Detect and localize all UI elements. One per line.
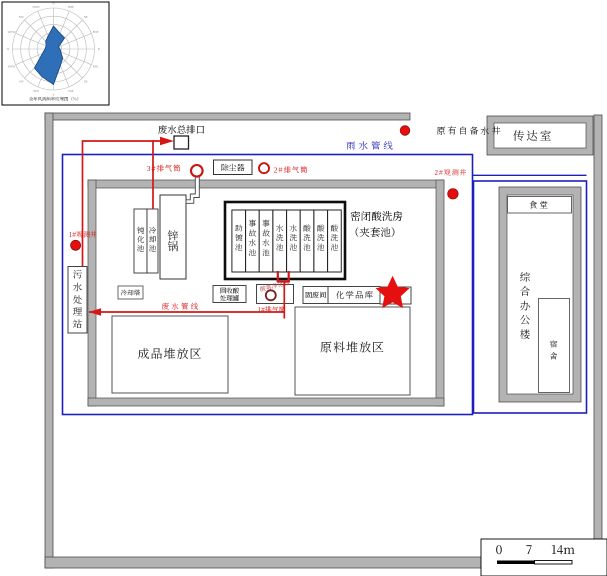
svg-text:WNW: WNW (8, 30, 16, 34)
svg-text:冷却塔: 冷却塔 (121, 288, 141, 297)
svg-text:3#排气筒: 3#排气筒 (147, 163, 182, 174)
svg-text:固废间: 固废间 (305, 291, 326, 301)
svg-text:酸洗池: 酸洗池 (317, 223, 325, 253)
svg-text:酸洗池: 酸洗池 (303, 223, 311, 253)
svg-text:0: 0 (496, 541, 503, 558)
svg-text:原料堆放区: 原料堆放区 (320, 339, 385, 356)
svg-text:SE: SE (84, 79, 88, 83)
svg-text:酸洗池: 酸洗池 (331, 223, 339, 253)
svg-text:雨水管线: 雨水管线 (346, 138, 396, 152)
svg-text:综合办公楼: 综合办公楼 (520, 270, 531, 342)
svg-text:SW: SW (19, 79, 24, 83)
svg-text:2#排气筒: 2#排气筒 (274, 165, 309, 176)
svg-text:密闭酸洗房: 密闭酸洗房 (350, 209, 403, 224)
svg-text:（夹套池）: （夹套池） (349, 225, 402, 240)
svg-text:ESE: ESE (93, 65, 99, 69)
svg-text:14m: 14m (551, 541, 575, 558)
svg-text:成品堆放区: 成品堆放区 (137, 345, 202, 362)
svg-text:E: E (98, 47, 100, 51)
svg-text:事故水池: 事故水池 (248, 218, 257, 258)
svg-text:化学品库: 化学品库 (335, 289, 374, 301)
svg-text:处理罐: 处理罐 (220, 294, 240, 303)
svg-text:传达室: 传达室 (513, 128, 554, 144)
svg-text:NE: NE (84, 15, 88, 19)
svg-text:钝化池: 钝化池 (137, 225, 145, 254)
svg-text:SSE: SSE (68, 89, 73, 93)
svg-text:冷却池: 冷却池 (149, 225, 157, 254)
svg-text:NW: NW (19, 15, 24, 19)
svg-text:事故水池: 事故水池 (261, 218, 270, 258)
svg-text:原有自备水井: 原有自备水井 (436, 124, 502, 137)
svg-text:SSW: SSW (33, 89, 39, 93)
svg-text:7: 7 (526, 541, 533, 558)
svg-text:1#观测井: 1#观测井 (69, 230, 97, 240)
svg-text:助镀池: 助镀池 (235, 223, 243, 253)
svg-text:WSW: WSW (8, 65, 16, 69)
svg-text:W: W (7, 47, 10, 51)
svg-text:锌锅: 锌锅 (168, 228, 179, 255)
svg-text:2#观测井: 2#观测井 (434, 168, 467, 178)
svg-text:食堂: 食堂 (529, 199, 550, 211)
svg-text:污水处理站: 污水处理站 (72, 267, 83, 331)
svg-text:水洗池: 水洗池 (289, 223, 298, 253)
svg-text:除尘器: 除尘器 (221, 162, 245, 173)
svg-text:ENE: ENE (93, 30, 99, 34)
svg-text:1#排气筒: 1#排气筒 (258, 304, 286, 314)
svg-text:NNW: NNW (33, 5, 40, 9)
svg-text:宿舍: 宿舍 (550, 339, 559, 362)
svg-text:NNE: NNE (68, 5, 74, 9)
svg-text:水洗池: 水洗池 (275, 223, 284, 253)
svg-text:废水总排口: 废水总排口 (158, 122, 206, 136)
svg-text:废水管线: 废水管线 (162, 301, 201, 312)
svg-text:全年风向频率玫瑰图（%）: 全年风向频率玫瑰图（%） (29, 96, 81, 103)
